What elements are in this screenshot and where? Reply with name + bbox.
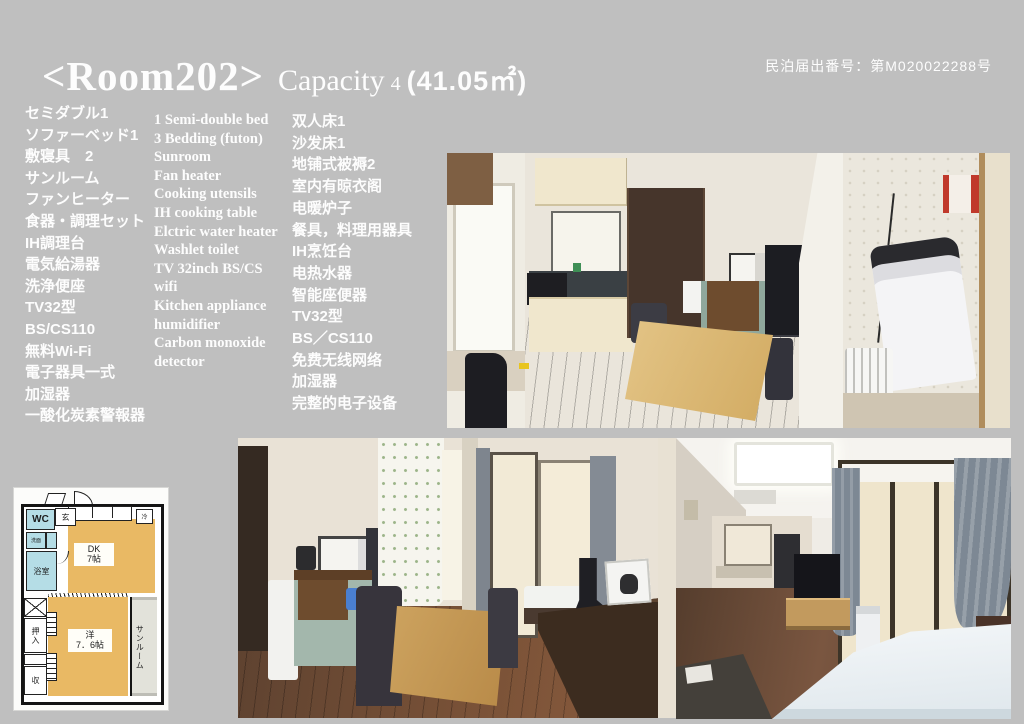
storage-room: 収 [24, 666, 47, 695]
entrance-genkan: 玄 [55, 508, 76, 526]
room-flyer-page: <Room202>Capacity4(41.05㎡) 民泊届出番号：第M0200… [0, 0, 1024, 724]
wc-room: WC [26, 509, 55, 530]
yellow-item-shape [519, 363, 529, 369]
cross-box [24, 598, 47, 617]
amenity-item-en: Cooking utensils [154, 185, 294, 204]
amenity-item-jp: BS/CS110 [25, 319, 160, 341]
amenity-item-jp: 電気給湯器 [25, 254, 160, 276]
amenity-item-zh: 电热水器 [292, 263, 442, 285]
amenity-item-jp: 電子器具一式 [25, 362, 160, 384]
photo-living-room [238, 438, 676, 718]
upper-cabinets-shape [535, 158, 627, 206]
kitchen-window-shape [551, 211, 621, 275]
capacity-label: Capacity [278, 64, 385, 97]
amenity-item-zh: 智能座便器 [292, 285, 442, 307]
floor-plan-walls: DK 7帖 冷 玄 WC 洗面 [21, 504, 164, 705]
room-sunroom-label: サンルーム [135, 607, 144, 687]
room-western-label: 洋 7．6帖 [68, 629, 112, 652]
amenities-japanese: セミダブル1ソファーベッド1敷寝具 2サンルームファンヒーター食器・調理セットI… [25, 103, 160, 427]
amenity-item-en: Sunroom [154, 148, 294, 167]
floral-curtain-shape [378, 438, 444, 606]
amenity-item-jp: 食器・調理セット [25, 211, 160, 233]
amenity-item-en: Kitchen appliance [154, 297, 294, 316]
amenity-item-en: 3 Bedding (futon) [154, 130, 294, 149]
amenity-item-jp: 加湿器 [25, 384, 160, 406]
amenity-item-en: IH cooking table [154, 204, 294, 223]
divider-wall-shape [799, 153, 845, 428]
closet-oshiire: 押入 [24, 618, 47, 653]
dining-chair-shape [488, 588, 518, 668]
sunroom-window-shape [453, 183, 515, 353]
amenity-item-zh: 完整的电子设备 [292, 393, 442, 415]
bathroom-room: 浴室 [26, 551, 57, 591]
amenity-item-en: humidifier [154, 316, 294, 335]
amenity-item-en: Washlet toilet [154, 241, 294, 260]
green-cup-shape [573, 263, 581, 272]
wardrobe-shape [238, 446, 268, 651]
amenity-item-zh: IH烹饪台 [292, 241, 442, 263]
washbasin-room: 洗面 [26, 532, 46, 549]
floor-plan: DK 7帖 冷 玄 WC 洗面 [14, 488, 168, 710]
amenity-item-jp: サンルーム [25, 168, 160, 190]
amenity-item-zh: TV32型 [292, 306, 442, 328]
amenity-item-jp: ソファーベッド1 [25, 125, 160, 147]
window-mullion-shape [890, 464, 895, 668]
amenity-item-zh: BS／CS110 [292, 328, 442, 350]
amenity-item-zh: 沙发床1 [292, 133, 442, 155]
kitchen-counter-divider [92, 507, 93, 518]
window-bright-shape [442, 450, 464, 600]
folding-door-icon [46, 653, 57, 681]
washbasin-side-cell [46, 532, 57, 549]
rice-cooker-shape [296, 546, 316, 570]
amenity-item-en: Elctric water heater [154, 223, 294, 242]
small-appliance-shape [683, 281, 701, 313]
room-dk-label: DK 7帖 [74, 543, 114, 566]
gray-curtain-shape [954, 458, 1011, 628]
ceiling-light-shape [734, 442, 834, 486]
tv-shape [794, 554, 840, 602]
refrigerator-box: 冷 [136, 509, 153, 524]
amenity-item-zh: 免费无线网络 [292, 350, 442, 372]
amenity-item-jp: TV32型 [25, 297, 160, 319]
back-counter-shape [716, 566, 772, 578]
overhead-cabinet-shape [447, 153, 493, 205]
amenity-item-zh: 双人床1 [292, 111, 442, 133]
back-window-shape [724, 524, 772, 566]
amenity-item-jp: 一酸化炭素警報器 [25, 405, 160, 427]
registration-number: 民泊届出番号：第M020022288号 [765, 56, 992, 76]
room-number-title: <Room202> [42, 53, 264, 99]
dark-chair-shape [465, 353, 507, 428]
folding-door-icon [46, 612, 57, 636]
amenity-item-jp: ファンヒーター [25, 189, 160, 211]
kitchen-counter-divider [112, 507, 113, 518]
amenity-item-zh: 餐具，料理用器具 [292, 220, 442, 242]
photo-kitchen-dining [447, 153, 1010, 428]
amenity-item-en: wifi [154, 278, 294, 297]
amenity-item-jp: 無料Wi-Fi [25, 341, 160, 363]
amenity-item-en: 1 Semi-double bed [154, 111, 294, 130]
small-cell [24, 654, 47, 665]
microwave-shape [318, 536, 366, 570]
door-frame-shape [979, 153, 1010, 428]
amenities-chinese: 双人床1沙发床1地铺式被褥2室内有晾衣阁电暖炉子餐具，料理用器具IH烹饪台电热水… [292, 111, 442, 415]
amenity-item-jp: 敷寝具 2 [25, 146, 160, 168]
amenity-item-en: Carbon monoxide [154, 334, 294, 353]
lower-cabinets-shape [529, 297, 633, 352]
ceiling-vent-shape [734, 490, 776, 504]
amenity-item-zh: 加湿器 [292, 371, 442, 393]
picture-frame-shape [684, 500, 698, 520]
amenity-item-jp: IH調理台 [25, 233, 160, 255]
amenity-item-jp: セミダブル1 [25, 103, 160, 125]
amenities-english: 1 Semi-double bed3 Bedding (futon)Sunroo… [154, 111, 294, 371]
amenity-item-en: TV 32inch BS/CS [154, 260, 294, 279]
tv-stand-shape [786, 598, 850, 630]
area-label: (41.05㎡) [407, 66, 528, 96]
laundry-floor-shape [843, 393, 983, 428]
capacity-value: 4 [391, 73, 401, 95]
amenity-item-jp: 洗浄便座 [25, 276, 160, 298]
amenity-item-zh: 室内有晾衣阁 [292, 176, 442, 198]
right-wall-shape [658, 438, 676, 718]
laundry-poster-shape [943, 175, 979, 213]
amenity-item-zh: 电暖炉子 [292, 198, 442, 220]
amenity-item-zh: 地铺式被褥2 [292, 154, 442, 176]
amenity-item-en: Fan heater [154, 167, 294, 186]
panda-picture-shape [620, 574, 638, 594]
kitchen-counter [68, 506, 132, 521]
amenity-item-en: detector [154, 353, 294, 372]
page-title: <Room202>Capacity4(41.05㎡) [42, 52, 527, 100]
microwave-shape [729, 253, 765, 281]
photo-bedroom [676, 438, 1011, 719]
